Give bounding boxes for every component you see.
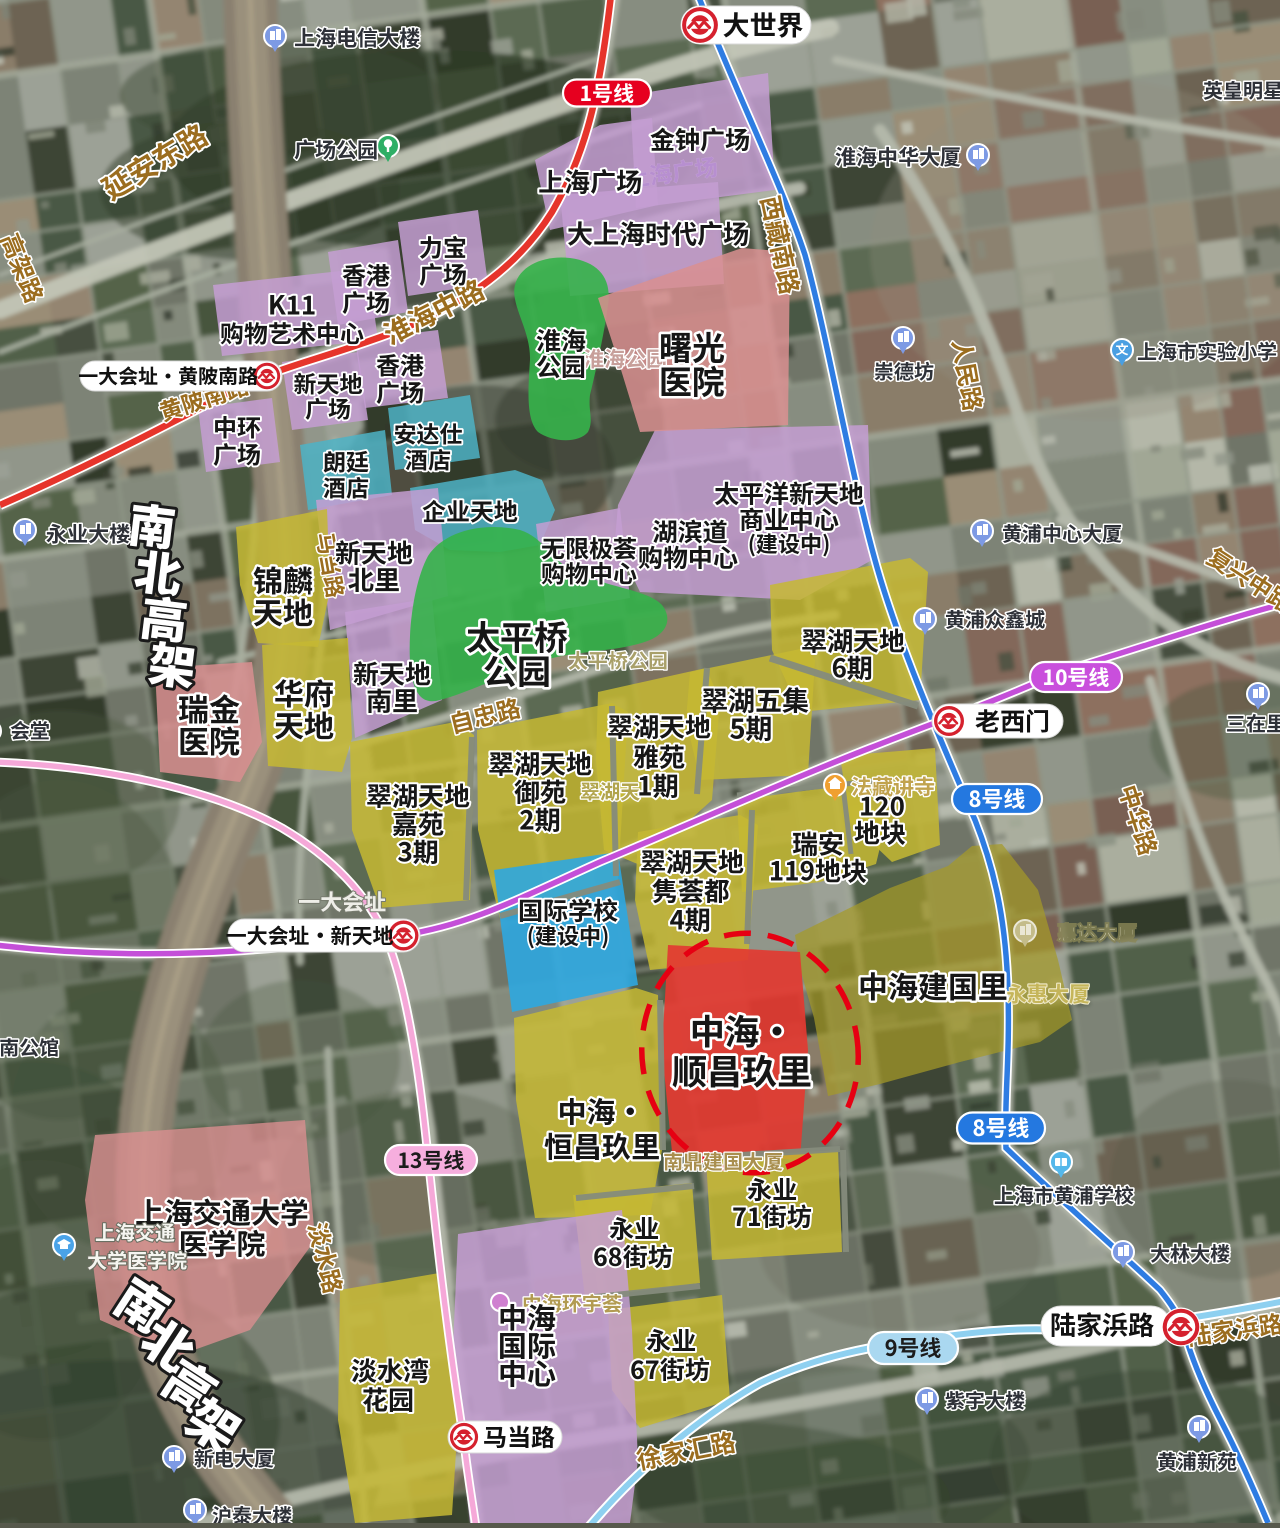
svg-text:英皇明星城: 英皇明星城 [1203,75,1280,104]
svg-text:黄浦中心大厦: 黄浦中心大厦 [1002,518,1122,547]
svg-text:老西门: 老西门 [975,702,1050,738]
svg-text:文: 文 [1115,340,1129,359]
svg-text:南公馆: 南公馆 [0,1032,59,1061]
svg-text:购物中心: 购物中心 [638,539,738,575]
svg-text:北里: 北里 [348,560,400,597]
svg-text:(建设中): (建设中) [748,527,831,559]
svg-text:广场公园: 广场公园 [294,135,378,165]
svg-text:购物中心: 购物中心 [541,555,637,590]
svg-text:大林大楼: 大林大楼 [1150,1238,1230,1267]
svg-text:大上海时代广场: 大上海时代广场 [567,214,749,251]
svg-text:沪泰大楼: 沪泰大楼 [212,1500,292,1523]
svg-text:上海广场: 上海广场 [538,162,642,199]
svg-text:酒店: 酒店 [323,469,369,503]
svg-text:上海市黄浦学校: 上海市黄浦学校 [994,1180,1134,1209]
svg-text:中海建国里: 中海建国里 [858,963,1008,1007]
svg-text:119地块: 119地块 [769,851,867,888]
svg-text:惠达大厦: 惠达大厦 [1057,917,1137,946]
svg-text:地块: 地块 [854,813,906,850]
svg-text:企业天地: 企业天地 [422,493,518,528]
svg-text:花园: 花园 [362,1380,414,1417]
svg-text:1号线: 1号线 [580,78,634,108]
svg-text:大世界: 大世界 [723,4,804,43]
svg-text:(建设中): (建设中) [527,919,610,951]
svg-text:黄浦众鑫城: 黄浦众鑫城 [945,604,1045,633]
svg-text:永业大楼: 永业大楼 [46,519,130,549]
svg-text:中心: 中心 [498,1351,556,1393]
svg-text:5期: 5期 [730,708,773,747]
svg-text:永惠大厦: 永惠大厦 [1006,979,1090,1009]
svg-text:71街坊: 71街坊 [732,1198,812,1234]
svg-text:酒店: 酒店 [405,441,451,475]
svg-text:67街坊: 67街坊 [630,1351,710,1387]
svg-text:10号线: 10号线 [1043,662,1110,692]
svg-text:8号线: 8号线 [969,782,1026,814]
svg-text:一大会址·新天地: 一大会址·新天地 [226,920,394,950]
svg-text:淮海公园: 淮海公园 [583,344,667,374]
svg-text:广场: 广场 [213,436,261,471]
svg-text:陆家浜路: 陆家浜路 [1050,1306,1155,1343]
svg-text:南里: 南里 [366,681,418,718]
svg-text:新电大厦: 新电大厦 [194,1443,274,1472]
svg-text:一大会址: 一大会址 [298,885,386,917]
svg-text:9号线: 9号线 [885,1331,942,1363]
svg-text:会堂: 会堂 [10,715,50,744]
svg-text:广场: 广场 [376,374,424,409]
svg-text:6期: 6期 [831,648,872,685]
svg-text:太平桥公园: 太平桥公园 [568,645,668,674]
svg-text:上海市实验小学: 上海市实验小学 [1137,336,1277,365]
svg-text:顺昌玖里: 顺昌玖里 [672,1045,812,1096]
svg-text:黄浦新苑: 黄浦新苑 [1157,1446,1237,1475]
svg-text:公园: 公园 [536,348,586,384]
svg-text:紫宇大楼: 紫宇大楼 [945,1385,1025,1414]
svg-text:天地: 天地 [274,702,334,746]
svg-text:4期: 4期 [669,900,710,937]
svg-text:2期: 2期 [519,800,560,837]
svg-text:三在里: 三在里 [1226,708,1280,737]
svg-text:一大会址·黄陂南路: 一大会址·黄陂南路 [78,360,258,389]
svg-text:医学院: 医学院 [178,1221,265,1263]
svg-text:大学医学院: 大学医学院 [87,1245,187,1274]
svg-text:1期: 1期 [637,766,678,803]
svg-text:医院: 医院 [178,717,240,762]
svg-text:购物艺术中心: 购物艺术中心 [220,315,364,350]
svg-text:金钟广场: 金钟广场 [650,121,750,157]
svg-text:医院: 医院 [659,356,725,404]
svg-text:广场: 广场 [342,284,390,319]
svg-text:8号线: 8号线 [973,1111,1030,1143]
svg-text:马当路: 马当路 [483,1418,555,1453]
svg-text:广场: 广场 [305,390,351,424]
svg-text:淮海中华大厦: 淮海中华大厦 [835,142,961,172]
svg-text:天地: 天地 [253,589,313,633]
svg-text:13号线: 13号线 [398,1145,465,1175]
svg-text:崇德坊: 崇德坊 [874,356,934,385]
svg-text:公园: 公园 [483,645,551,694]
svg-text:68街坊: 68街坊 [593,1238,673,1274]
svg-text:上海电信大楼: 上海电信大楼 [294,23,420,53]
svg-text:3期: 3期 [397,832,438,869]
svg-text:上海交通: 上海交通 [95,1217,175,1246]
svg-text:恒昌玖里: 恒昌玖里 [544,1124,660,1166]
svg-text:广场: 广场 [419,256,467,291]
